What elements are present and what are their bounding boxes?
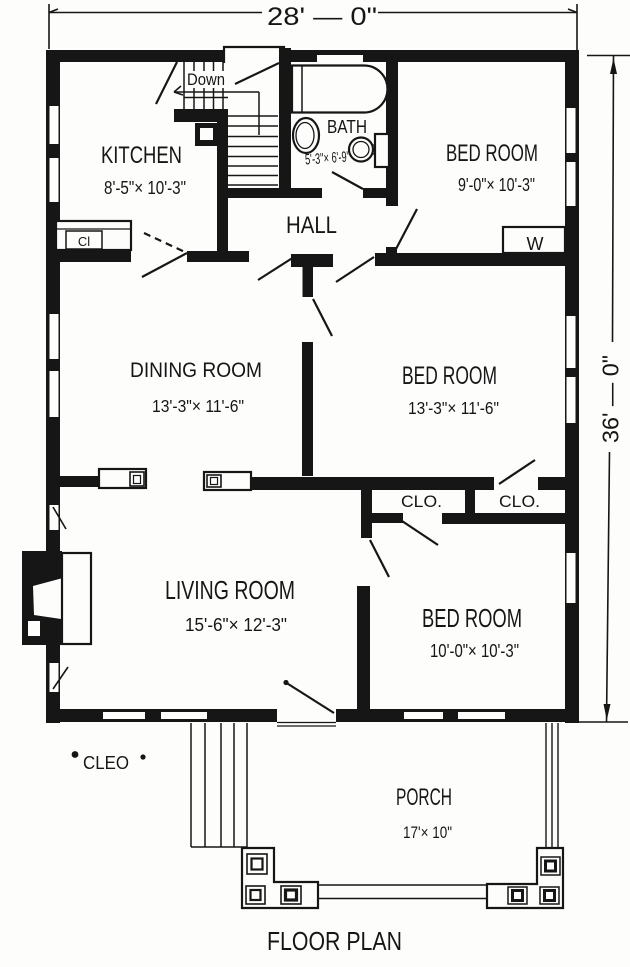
svg-text:BATH: BATH — [327, 117, 367, 137]
svg-text:HALL: HALL — [286, 212, 337, 239]
svg-text:Down: Down — [187, 71, 225, 89]
svg-text:28' — 0": 28' — 0" — [267, 3, 377, 31]
svg-text:CLO.: CLO. — [401, 493, 442, 511]
svg-text:DINING ROOM: DINING ROOM — [130, 359, 262, 382]
svg-text:BED ROOM: BED ROOM — [422, 603, 522, 633]
svg-text:8'-5"× 10'-3": 8'-5"× 10'-3" — [104, 177, 186, 198]
svg-text:CLEO: CLEO — [83, 753, 129, 773]
svg-text:13'-3"× 11'-6": 13'-3"× 11'-6" — [152, 396, 244, 416]
svg-text:W: W — [527, 234, 544, 254]
svg-text:9'-0"× 10'-3": 9'-0"× 10'-3" — [458, 174, 535, 195]
svg-text:15'-6"× 12'-3": 15'-6"× 12'-3" — [185, 614, 287, 635]
svg-text:17'× 10": 17'× 10" — [403, 823, 452, 842]
svg-text:FLOOR PLAN: FLOOR PLAN — [267, 926, 402, 956]
svg-text:Cl: Cl — [78, 234, 90, 249]
svg-text:PORCH: PORCH — [396, 784, 452, 811]
svg-text:BED ROOM: BED ROOM — [446, 140, 538, 167]
svg-text:10'-0"× 10'-3": 10'-0"× 10'-3" — [430, 641, 519, 661]
svg-text:36' — 0": 36' — 0" — [598, 355, 624, 443]
svg-text:KITCHEN: KITCHEN — [101, 142, 182, 169]
svg-text:LIVING ROOM: LIVING ROOM — [165, 575, 295, 605]
svg-text:13'-3"× 11'-6": 13'-3"× 11'-6" — [408, 398, 499, 418]
svg-text:CLO.: CLO. — [499, 493, 540, 511]
svg-text:5'-3"× 6'-9": 5'-3"× 6'-9" — [304, 148, 350, 168]
svg-text:BED ROOM: BED ROOM — [402, 362, 497, 390]
